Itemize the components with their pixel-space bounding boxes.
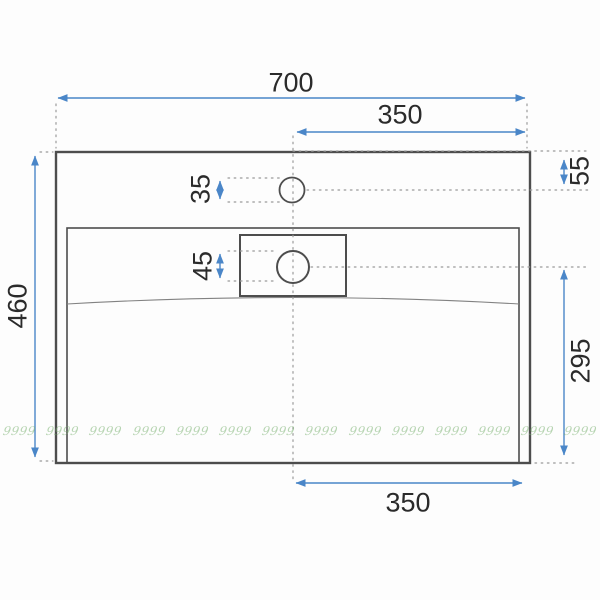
faucet-hole [280,178,305,203]
sink-dimension-drawing: 700 350 460 55 35 45 295 350 99999999999… [0,0,600,600]
label-overall-width: 700 [268,70,313,97]
label-drain-to-front: 295 [568,338,595,383]
label-overall-depth: 460 [5,283,32,328]
dimension-arrows [35,98,564,483]
label-center-to-right-bottom: 350 [385,490,430,517]
extension-lines [40,104,588,480]
label-center-to-right-top: 350 [377,102,422,129]
label-faucet-offset: 55 [567,156,594,186]
label-drain-diameter: 45 [190,251,217,281]
label-faucet-diameter: 35 [188,174,215,204]
